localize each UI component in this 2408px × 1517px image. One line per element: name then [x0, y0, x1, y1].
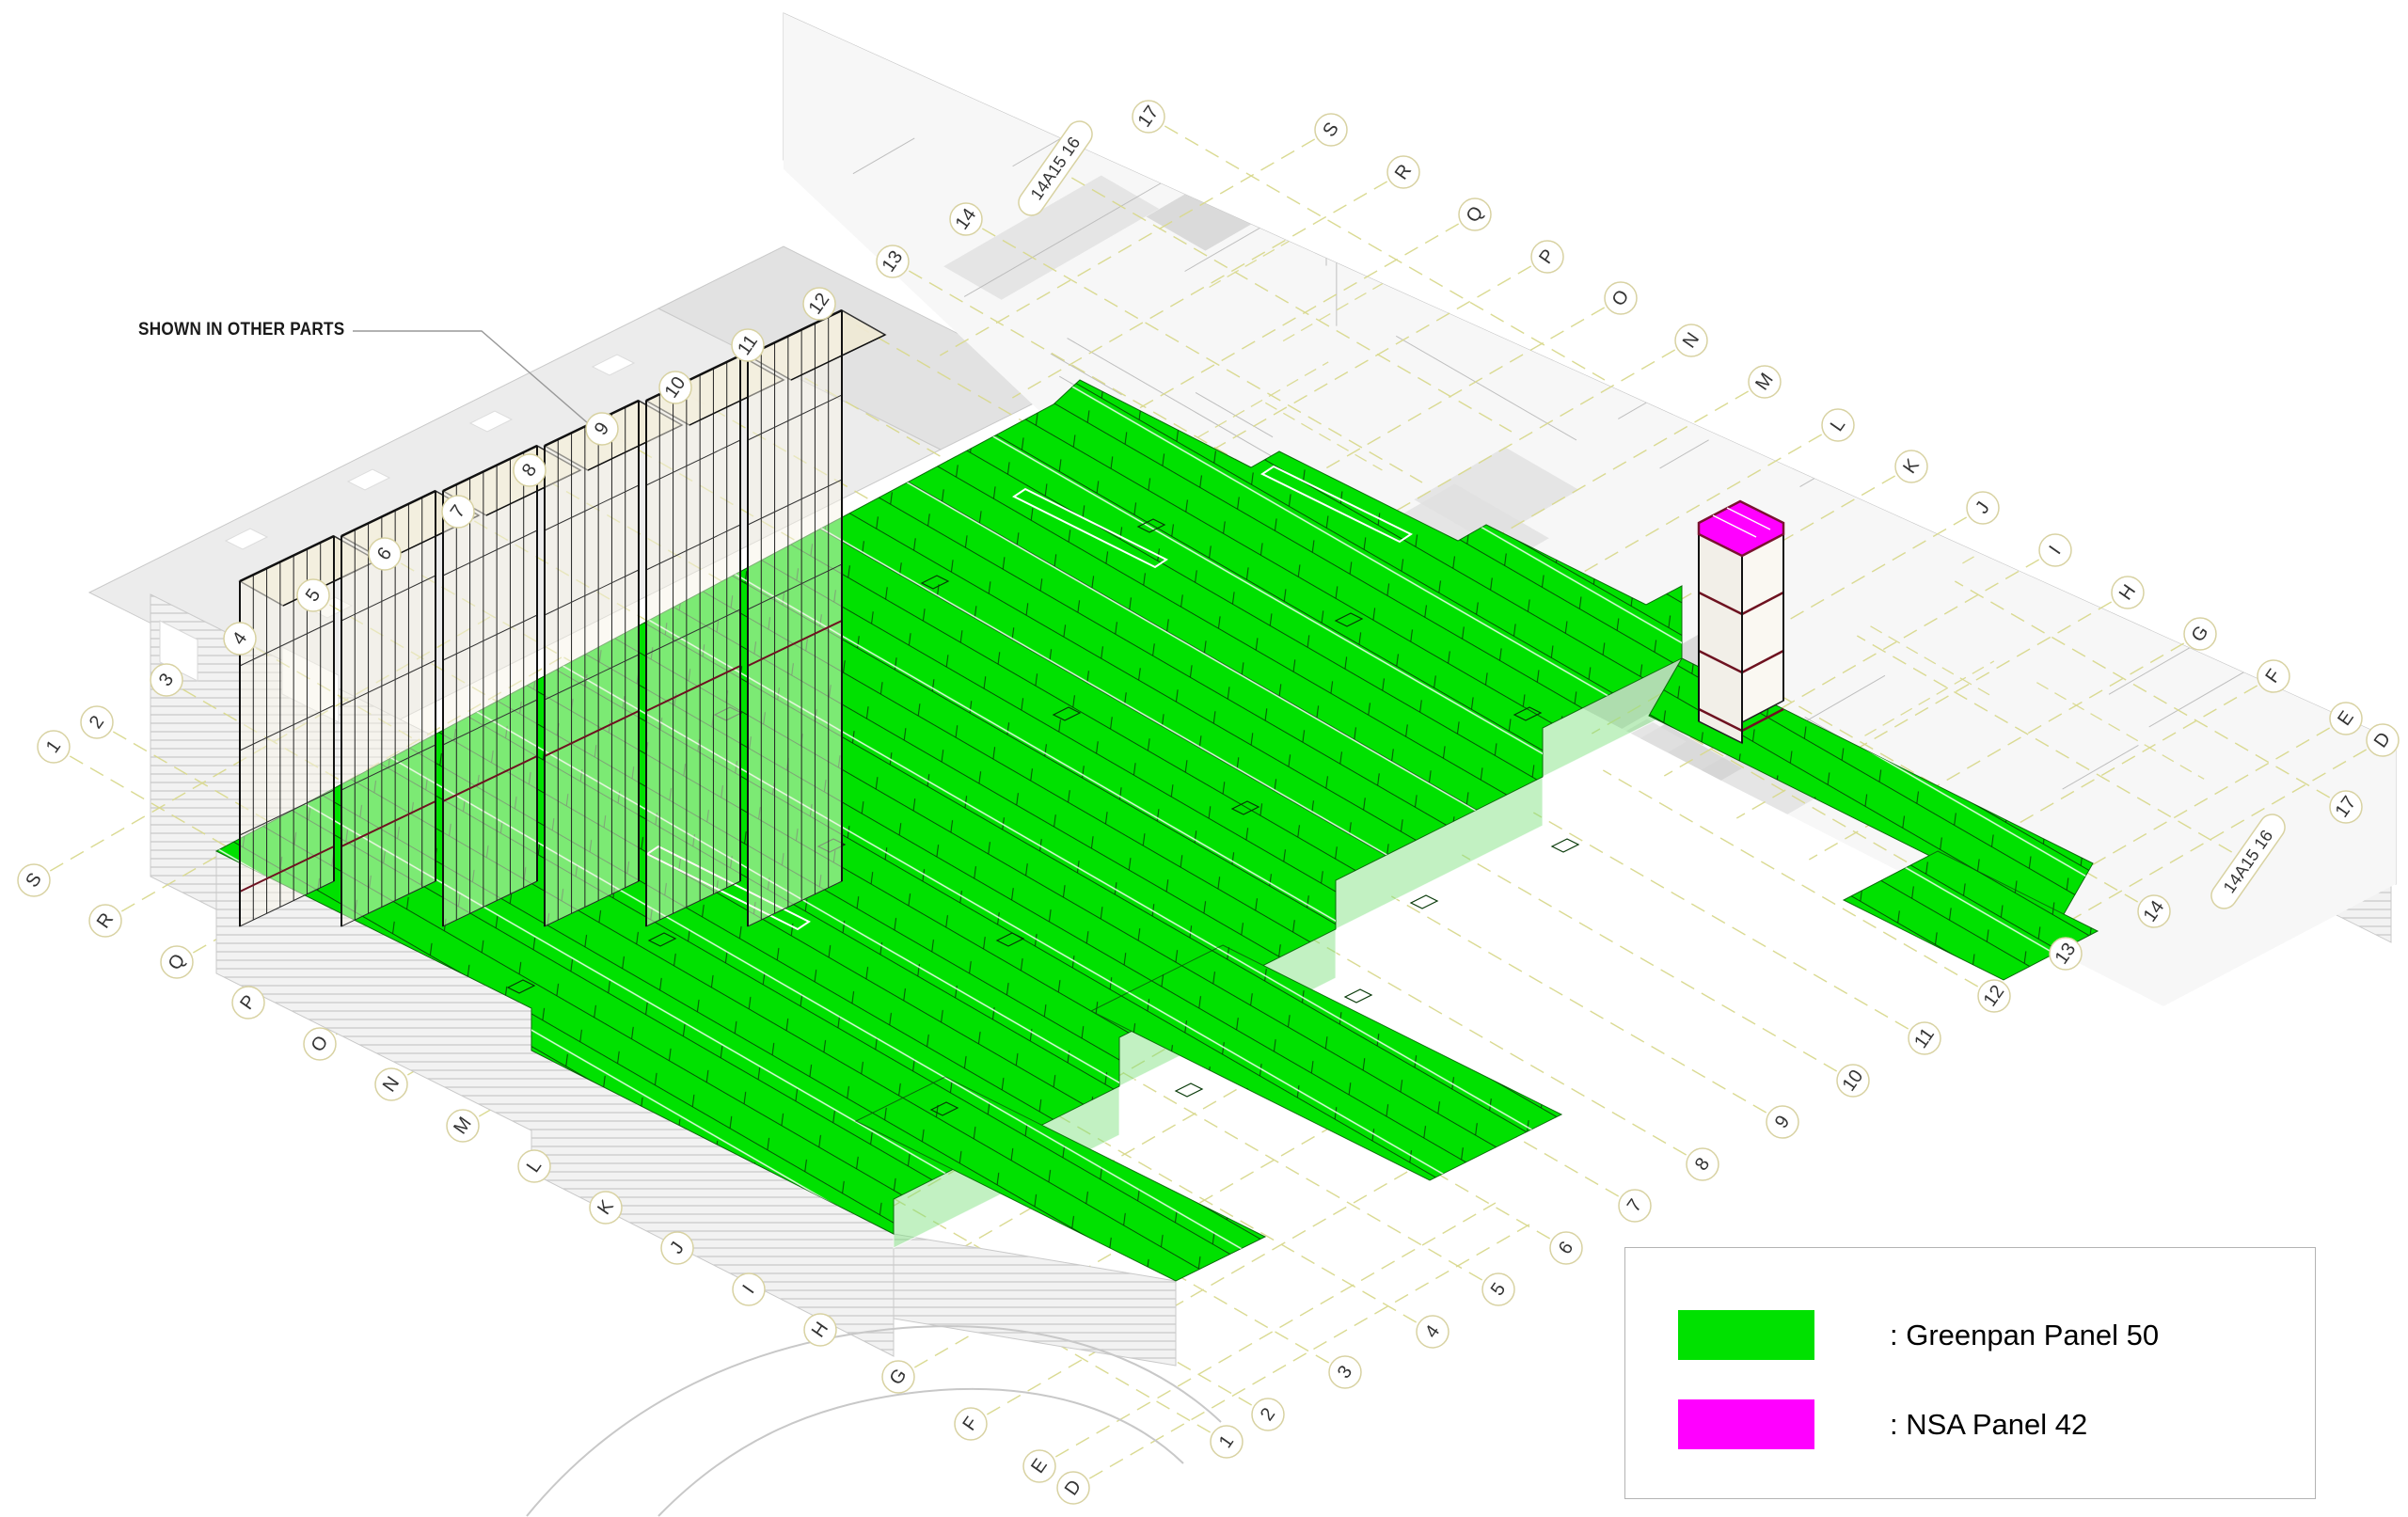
grid-bubble-S: S [18, 864, 50, 896]
grid-bubble-J: J [1967, 492, 1999, 524]
isometric-roof-plan-drawing: 123456789101112131414A15 1617SRQPONMLKJI… [0, 0, 2408, 1517]
grid-bubble-7: 7 [1619, 1190, 1651, 1222]
grid-bubble-E: E [1023, 1450, 1055, 1482]
grid-bubble-L: L [1822, 409, 1854, 441]
greenpan-color-swatch [1678, 1310, 1814, 1360]
grid-bubble-17: 17 [2330, 791, 2362, 823]
grid-bubble-5: 5 [1482, 1273, 1514, 1305]
grid-bubble-10: 10 [659, 371, 691, 403]
grid-bubble-G: G [882, 1361, 914, 1393]
grid-bubble-14: 14 [950, 203, 982, 235]
grid-bubble-M: M [447, 1110, 479, 1142]
nsa-panel-tower [1699, 501, 1783, 743]
grid-bubble-6: 6 [1550, 1232, 1582, 1264]
legend-box: : Greenpan Panel 50 : NSA Panel 42 [1624, 1247, 2316, 1499]
grid-bubble-D: D [1057, 1472, 1089, 1504]
grid-bubble-M: M [1749, 366, 1781, 398]
grid-bubble-H: H [2112, 577, 2144, 608]
grid-bubble-17: 17 [1133, 101, 1164, 133]
grid-bubble-5: 5 [297, 579, 329, 611]
grid-bubble-O: O [1605, 282, 1637, 314]
grid-bubble-14: 14 [2138, 895, 2170, 927]
grid-bubble-P: P [1531, 241, 1563, 273]
legend-label-nsa: : NSA Panel 42 [1890, 1408, 2087, 1442]
grid-bubble-1: 1 [38, 731, 70, 763]
grid-bubble-H: H [804, 1314, 836, 1346]
grid-bubble-R: R [89, 905, 121, 937]
grid-bubble-R: R [1387, 156, 1419, 188]
grid-bubble-4: 4 [224, 623, 256, 655]
grid-bubble-3: 3 [150, 664, 182, 696]
legend-item-nsa: : NSA Panel 42 [1678, 1399, 2087, 1449]
grid-bubble-2: 2 [81, 706, 113, 738]
grid-bubble-Q: Q [161, 946, 193, 978]
grid-bubble-K: K [590, 1192, 622, 1224]
grid-bubble-D: D [2367, 724, 2399, 756]
legend-label-greenpan: : Greenpan Panel 50 [1890, 1319, 2159, 1352]
grid-bubble-10: 10 [1837, 1065, 1869, 1097]
grid-bubble-2: 2 [1252, 1398, 1284, 1430]
grid-bubble-E: E [2330, 703, 2362, 735]
grid-bubble-O: O [304, 1028, 336, 1060]
grid-bubble-13: 13 [877, 245, 909, 277]
nsa-color-swatch [1678, 1399, 1814, 1449]
grid-bubble-8: 8 [1687, 1148, 1719, 1180]
legend-item-greenpan: : Greenpan Panel 50 [1678, 1310, 2159, 1360]
grid-bubble-9: 9 [1766, 1106, 1798, 1138]
grid-bubble-Q: Q [1459, 198, 1491, 230]
grid-bubble-N: N [375, 1068, 407, 1100]
grid-bubble-9: 9 [586, 413, 618, 445]
grid-bubble-11: 11 [1909, 1022, 1941, 1054]
grid-bubble-13: 13 [2050, 938, 2082, 970]
grid-bubble-I: I [733, 1273, 765, 1305]
grid-bubble-6: 6 [369, 538, 401, 570]
annotation-label: SHOWN IN OTHER PARTS [138, 319, 344, 340]
grid-bubble-12: 12 [1978, 980, 2010, 1012]
grid-bubble-S: S [1315, 114, 1347, 146]
grid-bubble-8: 8 [514, 454, 546, 486]
grid-bubble-11: 11 [732, 329, 764, 361]
grid-bubble-L: L [518, 1150, 550, 1182]
grid-bubble-I: I [2039, 534, 2071, 566]
grid-bubble-F: F [2257, 660, 2289, 692]
grid-bubble-J: J [661, 1232, 693, 1264]
grid-bubble-4: 4 [1417, 1316, 1449, 1348]
grid-bubble-F: F [955, 1408, 987, 1440]
grid-bubble-3: 3 [1329, 1356, 1361, 1388]
grid-bubble-1: 1 [1211, 1426, 1243, 1458]
grid-bubble-7: 7 [442, 496, 474, 528]
grid-bubble-N: N [1675, 324, 1707, 356]
grid-bubble-G: G [2184, 618, 2216, 650]
grid-bubble-12: 12 [803, 288, 835, 320]
grid-bubble-P: P [232, 987, 264, 1019]
grid-bubble-K: K [1895, 450, 1927, 482]
